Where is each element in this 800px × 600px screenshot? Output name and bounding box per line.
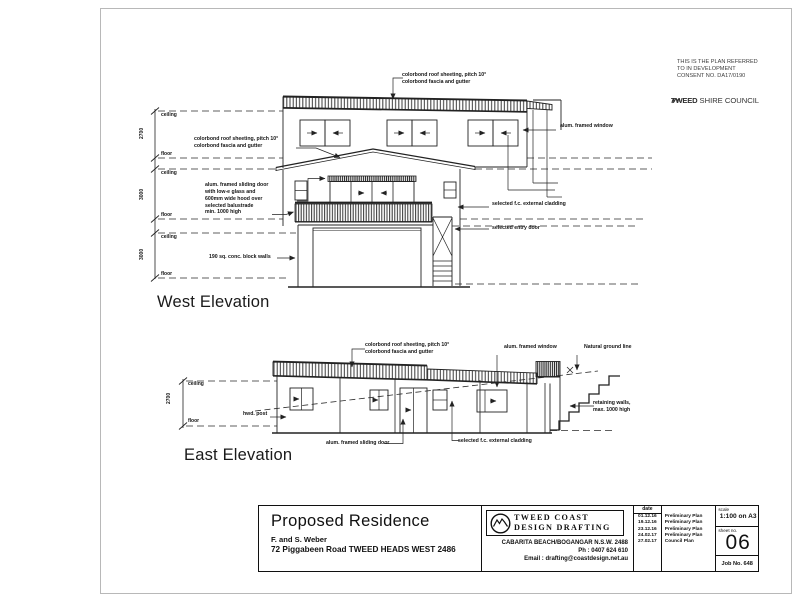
west-dimension-lines (151, 108, 159, 282)
title-block-revision-cell: date 01.12.16 19.12.16 23.12.16 24.02.17… (633, 506, 758, 571)
scale-sheet-column: scale 1:100 on A3 sheet no. 06 Job No. 6… (716, 506, 758, 571)
title-block-firm-cell: TWEED COAST DESIGN DRAFTING CABARITA BEA… (481, 506, 633, 571)
title-block: Proposed Residence F. and S. Weber 72 Pi… (258, 505, 759, 572)
firm-logo-icon (490, 513, 511, 534)
revision-desc: Council Plan (665, 539, 716, 545)
firm-address: CABARITA BEACH/BOGANGAR N.S.W. 2488 (502, 540, 628, 548)
council-stamp: TWEED SHIRE COUNCIL (671, 96, 759, 105)
east-dim-2700: 2700 (166, 393, 172, 404)
west-block-walls-note: 190 sq. conc. block walls (209, 254, 271, 261)
east-cladding-note: selected f.c. external cladding (458, 438, 532, 445)
firm-logo-box: TWEED COAST DESIGN DRAFTING (486, 510, 624, 536)
west-dim-3000b: 3000 (139, 249, 145, 260)
east-sliding-door-note: alum. framed sliding door (326, 440, 389, 447)
west-floor-label-3: floor (161, 271, 172, 277)
west-floor-label-1: floor (161, 151, 172, 157)
project-title: Proposed Residence (271, 512, 481, 531)
west-entry-door-note: selected entry door (492, 225, 540, 232)
job-number: Job No. 648 (716, 556, 758, 571)
east-datum-lines (186, 381, 613, 431)
west-window-note: alum. framed window (560, 123, 613, 130)
firm-email: Email : drafting@coastdesign.net.au (502, 556, 628, 564)
west-ceiling-label-1: ceiling (161, 112, 177, 118)
development-consent-stamp: THIS IS THE PLAN REFERRED TO IN DEVELOPM… (677, 59, 758, 79)
west-dim-2700: 2700 (139, 128, 145, 139)
west-roof-top-note: colorbond roof sheeting, pitch 10° color… (402, 72, 486, 86)
revision-desc-column: Preliminary Plan Preliminary Plan Prelim… (662, 506, 717, 571)
east-window-note: alum. framed window (504, 344, 557, 351)
firm-name-line1: TWEED COAST (514, 513, 611, 523)
revision-date-header: date (634, 506, 661, 514)
west-ceiling-label-3: ceiling (161, 234, 177, 240)
east-post-note: hwd. post (243, 411, 267, 418)
west-sliding-door-note: alum. framed sliding door with low-e gla… (205, 182, 268, 216)
east-ceiling-label: ceiling (188, 381, 204, 387)
east-dimension-lines (179, 378, 187, 430)
east-retaining-note: retaining walls, max. 1000 high (593, 400, 630, 414)
client-name: F. and S. Weber (271, 535, 481, 544)
council-name-rest: SHIRE COUNCIL (697, 96, 759, 105)
project-address: 72 Piggabeen Road TWEED HEADS WEST 2486 (271, 545, 481, 554)
west-elevation-title: West Elevation (157, 293, 270, 312)
firm-name-line2: DESIGN DRAFTING (514, 523, 611, 533)
title-block-project-cell: Proposed Residence F. and S. Weber 72 Pi… (259, 506, 481, 571)
revision-date: 27.02.17 (634, 539, 661, 545)
firm-phone: Ph : 0407 624 610 (502, 548, 628, 556)
west-floor-label-2: floor (161, 212, 172, 218)
west-elevation-drawing (100, 60, 660, 320)
west-roof-mid-note: colorbond roof sheeting, pitch 10° color… (194, 136, 278, 150)
revision-date: 23.12.16 (634, 527, 661, 533)
drawing-sheet: colorbond roof sheeting, pitch 10° color… (0, 0, 800, 600)
scale-label: scale (718, 507, 758, 512)
west-dim-3000a: 3000 (139, 189, 145, 200)
scale-value: 1:100 on A3 (718, 513, 758, 520)
west-ceiling-label-2: ceiling (161, 170, 177, 176)
east-ground-note: Natural ground line (584, 344, 632, 351)
sheet-number: 06 (718, 533, 758, 553)
east-floor-label: floor (188, 418, 199, 424)
east-elevation-title: East Elevation (184, 446, 292, 465)
revision-date-column: date 01.12.16 19.12.16 23.12.16 24.02.17… (634, 506, 662, 571)
west-building (276, 96, 561, 287)
east-roof-note: colorbond roof sheeting, pitch 10° color… (365, 342, 449, 356)
council-logo-icon (671, 96, 681, 105)
west-cladding-note: selected f.c. external cladding (492, 201, 566, 208)
